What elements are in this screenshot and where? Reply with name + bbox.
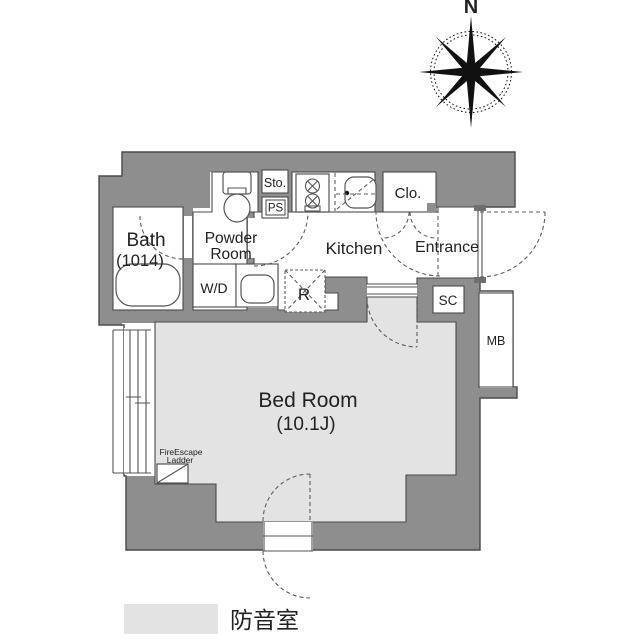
compass-north-label: N — [464, 0, 478, 18]
refrigerator-label: R — [298, 285, 310, 304]
legend-soundproof-swatch — [124, 604, 218, 634]
closet-notch — [427, 203, 436, 212]
powder-room-label-line2: Room — [210, 246, 251, 263]
compass-rose: N — [419, 0, 523, 128]
closet-label: Clo. — [395, 185, 422, 202]
fire-escape-hatch — [157, 464, 188, 483]
legend: 防音室 — [124, 604, 299, 634]
washer-dryer-label: W/D — [200, 280, 227, 296]
powder-room-label-line1: Powder — [205, 230, 258, 247]
storage-label: Sto. — [264, 176, 286, 190]
entrance-label: Entrance — [415, 239, 479, 256]
kitchen-label: Kitchen — [326, 239, 383, 258]
bedroom-size-label: (10.1J) — [276, 414, 335, 435]
floor-plan-svg: N Bath (1014) Powder Room Sto. PS Kitche… — [0, 0, 640, 639]
washbasin — [241, 275, 274, 303]
bath-size-label: (1014) — [116, 252, 164, 270]
bath-label: Bath — [126, 230, 165, 251]
entrance-door — [474, 205, 545, 283]
pipe-space-label: PS — [268, 203, 284, 215]
bedroom-label: Bed Room — [258, 389, 357, 412]
window-bedroom — [113, 328, 151, 474]
meter-box-label: MB — [487, 334, 506, 348]
legend-soundproof-label: 防音室 — [230, 607, 299, 633]
stove — [296, 174, 329, 212]
fire-escape-label-line2: Ladder — [167, 455, 194, 465]
shoe-closet-label: SC — [439, 293, 458, 308]
floor-plan-page: N Bath (1014) Powder Room Sto. PS Kitche… — [0, 0, 640, 639]
bathtub — [116, 264, 180, 306]
